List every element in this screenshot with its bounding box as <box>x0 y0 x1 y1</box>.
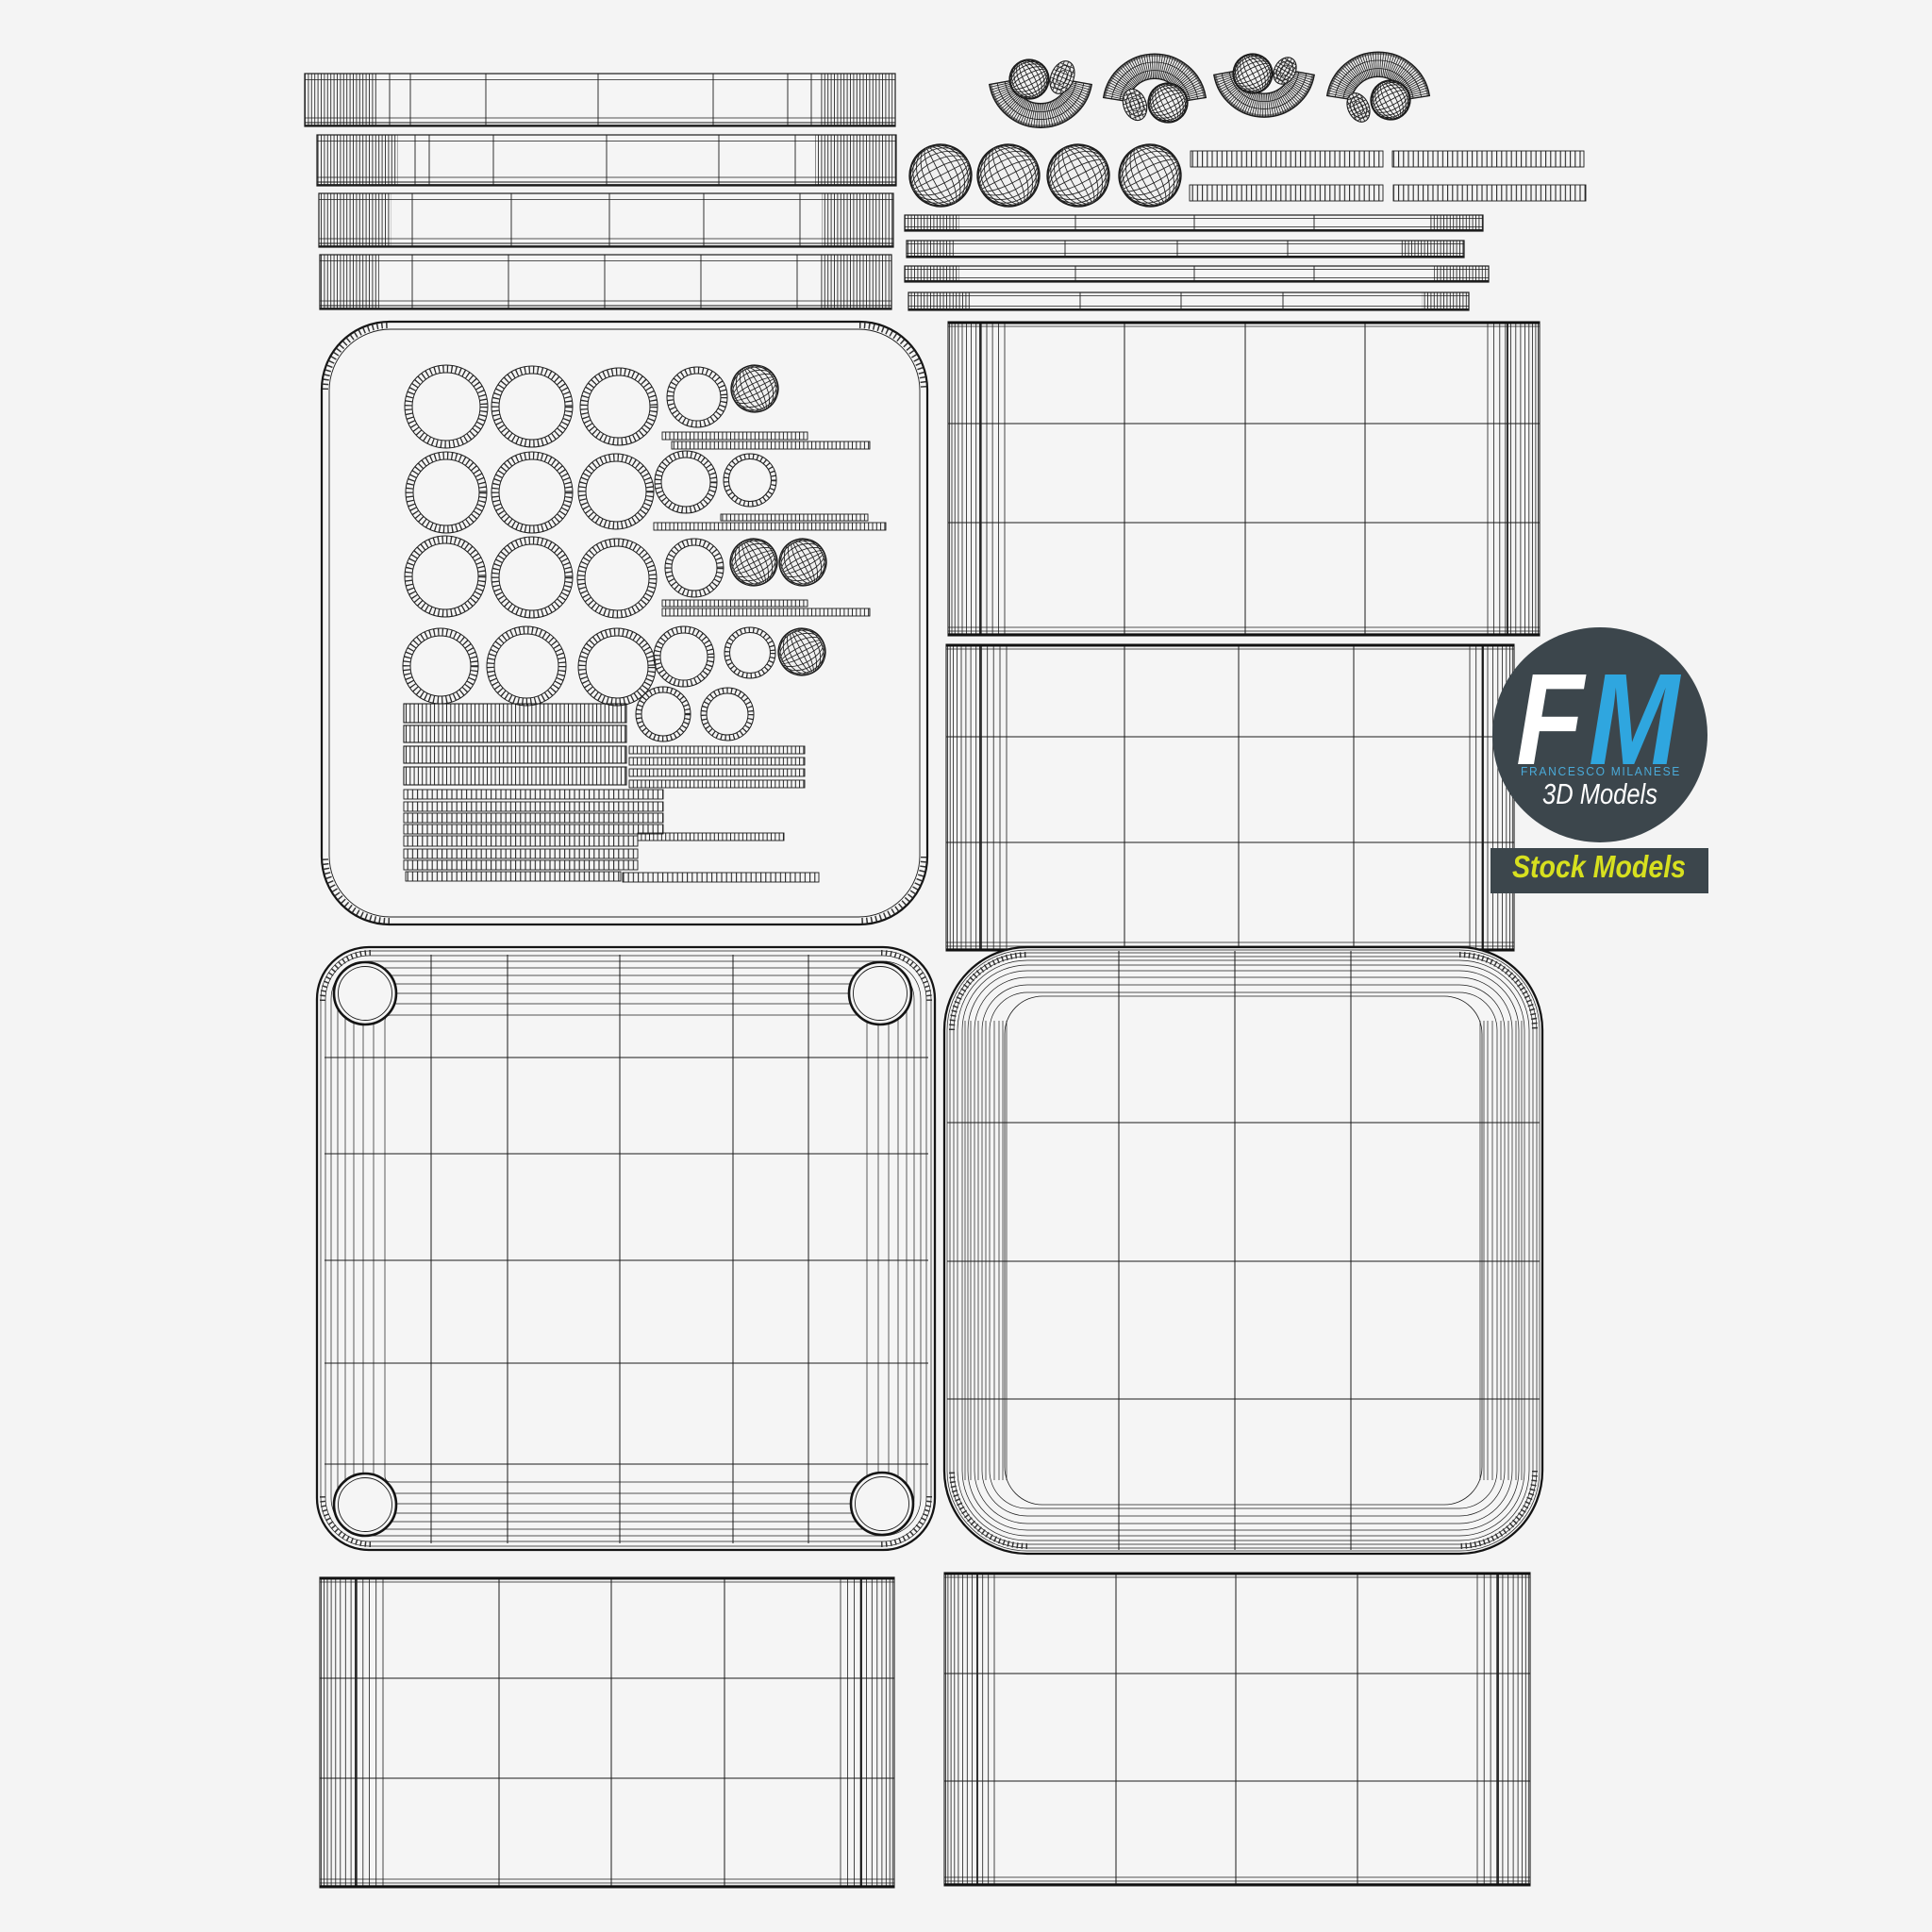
svg-text:3D Models: 3D Models <box>1542 777 1657 810</box>
svg-text:FRANCESCO MILANESE: FRANCESCO MILANESE <box>1521 764 1681 778</box>
svg-text:Stock Models: Stock Models <box>1512 849 1686 884</box>
